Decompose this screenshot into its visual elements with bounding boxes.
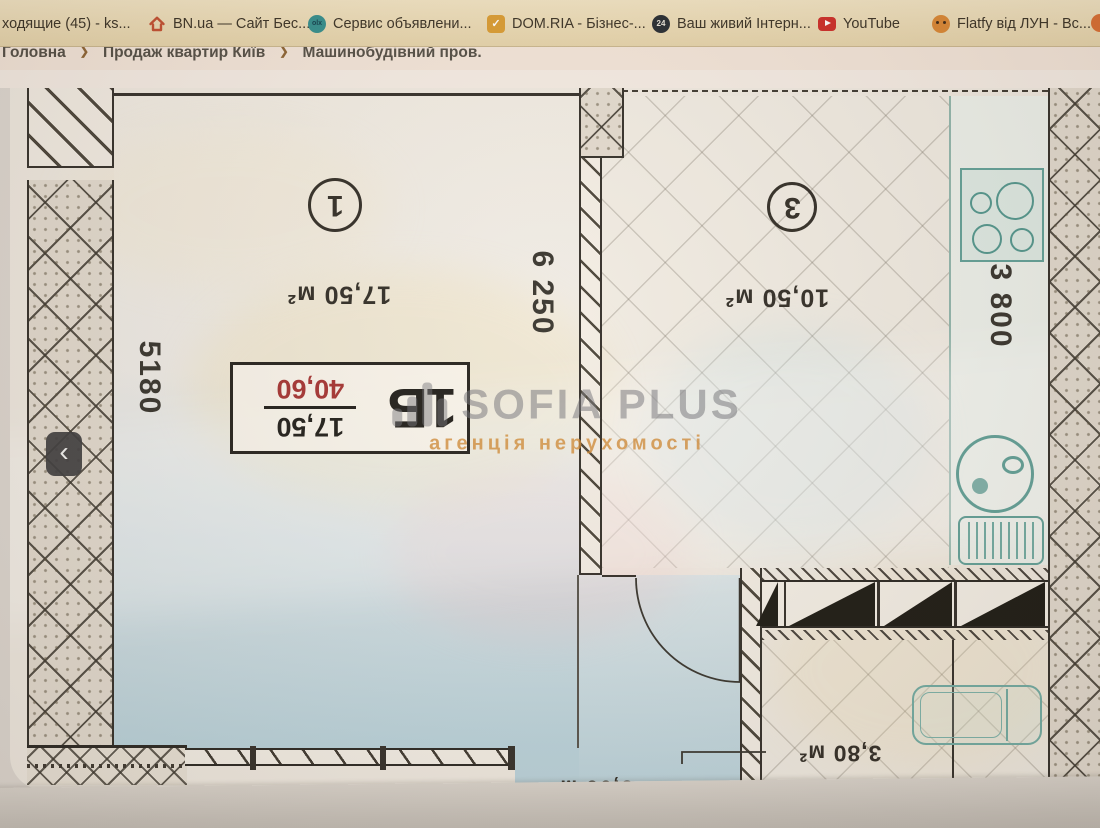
gallery-prev-button[interactable]: ‹	[46, 432, 82, 476]
bookmark-live24-label: Ваш живий Інтерн...	[677, 16, 811, 32]
breadcrumb-separator-icon: ❯	[279, 47, 288, 58]
breadcrumb-separator-icon: ❯	[80, 47, 89, 58]
room3-area-label: 10,50 м²	[725, 283, 829, 312]
breadcrumb-street[interactable]: Машинобудівний пров.	[303, 47, 482, 62]
window-band-bottom	[185, 748, 515, 766]
apartment-stamp: 1Б 17,50 40,60	[230, 362, 470, 454]
floor-plan-image[interactable]: 1 17,50 м² 3 10,50 м² 3,80 м² 5,00 м² 51…	[10, 88, 1100, 790]
window-post	[508, 746, 515, 770]
room1-number-circle: 1	[308, 178, 362, 232]
chevron-left-icon: ‹	[59, 438, 68, 466]
bookmarks-bar: ходящие (45) - ks... BN.ua — Сайт Бес...…	[0, 0, 1100, 47]
sink-faucet	[1002, 456, 1024, 474]
bookmark-domria-label: DOM.RIA - Бізнес-...	[512, 16, 646, 32]
dim-5180: 5180	[132, 341, 166, 416]
bookmark-youtube-label: YouTube	[843, 16, 900, 32]
sink-icon	[956, 435, 1034, 513]
bookmark-inbox[interactable]: ходящие (45) - ks...	[2, 0, 131, 47]
bookmark-bnua[interactable]: BN.ua — Сайт Бес...	[148, 0, 310, 47]
page-background-strip	[0, 70, 1100, 88]
bookmark-partial-icon[interactable]	[1091, 14, 1100, 32]
bathroom-area-label: 3,80 м²	[799, 740, 882, 767]
domria-icon: ✓	[487, 15, 505, 33]
bookmark-bnua-label: BN.ua — Сайт Бес...	[173, 16, 310, 32]
dim-3800: 3 800	[983, 263, 1017, 348]
room3-number: 3	[784, 190, 801, 224]
bookmark-live24[interactable]: 24 Ваш живий Інтерн...	[652, 0, 811, 47]
bookmark-olx-label: Сервис объявлени...	[333, 16, 472, 32]
stamp-fraction-bar	[264, 407, 356, 410]
breadcrumb-sale-kyiv[interactable]: Продаж квартир Київ	[103, 47, 265, 62]
room3-number-circle: 3	[767, 182, 817, 232]
youtube-icon	[818, 15, 836, 33]
room1-number: 1	[327, 188, 344, 222]
breadcrumb: Головна ❯ Продаж квартир Київ ❯ Машинобу…	[0, 47, 1100, 70]
stamp-areas: 17,50 40,60	[243, 374, 378, 443]
hall-divider-line	[577, 575, 579, 748]
dim-6250: 6 250	[525, 250, 559, 335]
bookmark-domria[interactable]: ✓ DOM.RIA - Бізнес-...	[487, 0, 646, 47]
column-middle-top	[579, 88, 624, 158]
breadcrumb-home[interactable]: Головна	[2, 47, 66, 62]
wall-middle	[579, 158, 602, 575]
hall-floor	[579, 575, 740, 790]
bookmark-inbox-label: ходящие (45) - ks...	[2, 16, 131, 32]
drainboard-icon	[958, 516, 1044, 565]
sink-drain	[972, 478, 988, 494]
bathtub-icon	[912, 685, 1042, 745]
screenshot-root: ходящие (45) - ks... BN.ua — Сайт Бес...…	[0, 0, 1100, 828]
kitchen-floor	[602, 96, 949, 568]
wall-bottom-solid	[27, 745, 187, 785]
badge-24-icon: 24	[652, 15, 670, 33]
bookmark-lun-label: Flatfy від ЛУН - Вс...	[957, 16, 1091, 32]
bookmark-youtube[interactable]: YouTube	[818, 0, 900, 47]
home-icon	[148, 15, 166, 33]
lun-face-icon	[932, 15, 950, 33]
room1-area-label: 17,50 м²	[287, 280, 391, 309]
bookmark-lun[interactable]: Flatfy від ЛУН - Вс...	[932, 0, 1091, 47]
wall-top-left-block	[27, 88, 114, 168]
vent-shaft-row	[762, 568, 1048, 640]
olx-icon: olx	[308, 15, 326, 33]
window-post	[380, 746, 386, 770]
wall-kitchen-top-line	[602, 90, 1048, 92]
wall-top-line	[114, 93, 602, 96]
stove-icon	[960, 168, 1044, 262]
bookmark-olx[interactable]: olx Сервис объявлени...	[308, 0, 472, 47]
wall-bathroom-left	[740, 568, 762, 790]
wall-right	[1048, 88, 1100, 790]
stamp-total-area: 40,60	[277, 374, 345, 405]
window-post	[250, 746, 256, 770]
stamp-type: 1Б	[390, 380, 457, 436]
stamp-living-area: 17,50	[277, 412, 345, 443]
